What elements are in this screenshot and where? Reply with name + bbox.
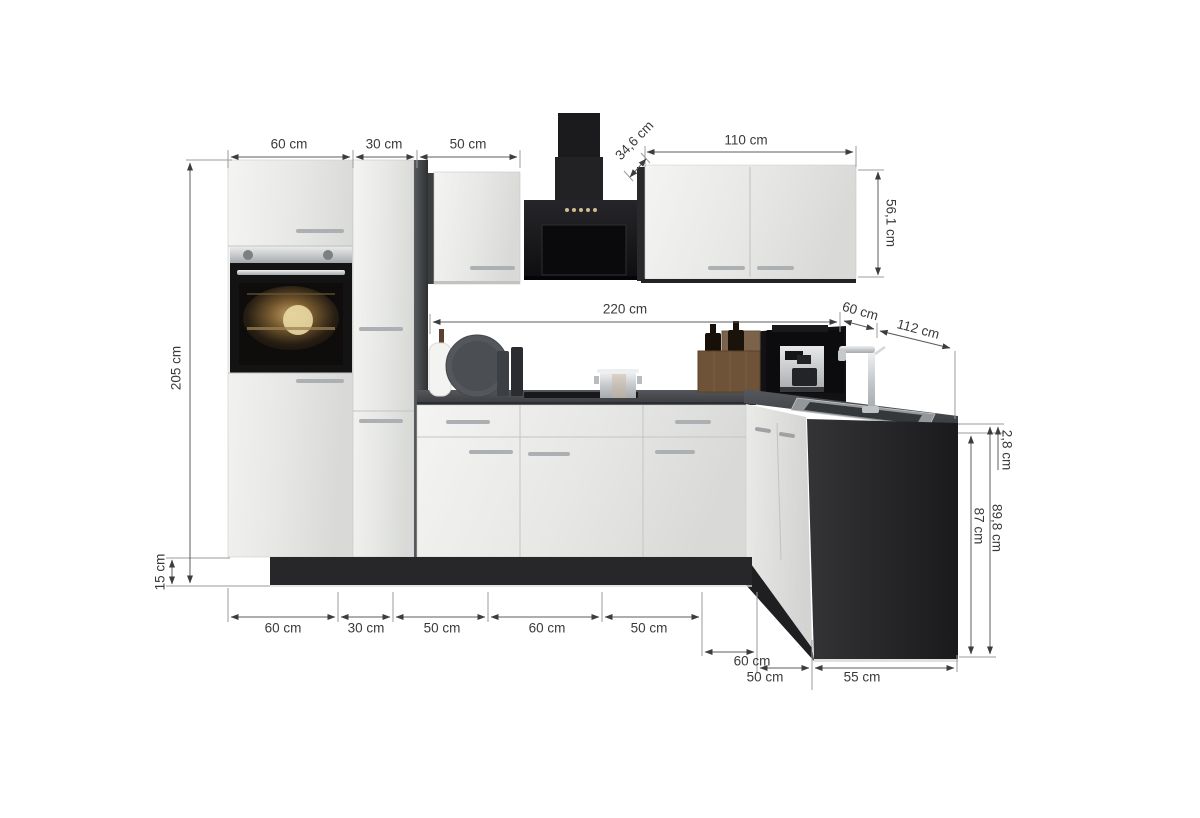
drip-tray [780, 387, 824, 392]
pepper-mill [511, 347, 523, 396]
wall-cabinet-side [637, 167, 645, 281]
worktop-edge [417, 402, 756, 405]
faucet-base [862, 406, 879, 413]
door-handle [655, 450, 695, 454]
dim-label-top-60: 60 cm [271, 138, 308, 153]
coffee-cup [792, 368, 817, 386]
door-handle [359, 419, 403, 423]
oven-knob [323, 250, 333, 260]
door-handle [528, 452, 570, 456]
oven-knob [243, 250, 253, 260]
floor-shadow [814, 659, 958, 662]
kitchen-scene [0, 0, 1200, 818]
dim-label-run-length: 220 cm [603, 303, 647, 318]
door-handle [296, 229, 344, 233]
hood-chimney-lower [555, 157, 603, 201]
dim-label-bottom-60a: 60 cm [265, 622, 302, 637]
faucet-lever [875, 347, 885, 354]
pepper-mill [497, 351, 509, 396]
kitchen-dimension-diagram: 60 cm 30 cm 50 cm 34,6 cm 110 cm 56,1 cm… [0, 0, 1200, 818]
dim-label-worktop-thickness: 2,8 cm [999, 430, 1014, 471]
coffee-spout [797, 355, 811, 364]
dim-label-bottom-30: 30 cm [348, 622, 385, 637]
cabinet-bottom-edge [641, 279, 856, 283]
oven-shelf [247, 327, 335, 330]
hood-button [579, 208, 583, 212]
faucet-body [868, 352, 875, 409]
oven-shelf [247, 293, 335, 295]
door-handle [470, 266, 515, 270]
bottle-neck [733, 321, 739, 332]
dim-label-br-55: 55 cm [844, 671, 881, 686]
dim-label-br-50: 50 cm [747, 671, 784, 686]
base-cabinet-run [417, 405, 746, 557]
door-handle [708, 266, 745, 270]
floor-shadow [270, 585, 752, 587]
dim-label-top-30: 30 cm [366, 138, 403, 153]
dim-label-bottom-50b: 50 cm [631, 622, 668, 637]
pot-handle [637, 376, 642, 384]
dim-label-carcass-height: 87 cm [971, 508, 986, 545]
oven-interior-light [283, 305, 313, 335]
dim-label-working-height: 89,8 cm [989, 504, 1004, 552]
pot-handle [594, 376, 599, 384]
dim-label-plinth-height: 15 cm [154, 554, 169, 591]
dim-label-wall-height: 56,1 cm [883, 199, 898, 247]
coffee-machine-top [772, 325, 828, 332]
wooden-crate [698, 351, 760, 392]
drawer-handle [675, 420, 711, 424]
hood-bottom-edge [524, 276, 637, 280]
hood-button [572, 208, 576, 212]
hood-glass-panel [542, 225, 626, 275]
plinth [270, 557, 752, 585]
faucet-tip [838, 350, 846, 361]
door-handle [359, 327, 403, 331]
hood-button [565, 208, 569, 212]
hood-button [586, 208, 590, 212]
dim-label-top-50: 50 cm [450, 138, 487, 153]
dim-label-bottom-50a: 50 cm [424, 622, 461, 637]
platter-center [452, 341, 502, 391]
door-handle [757, 266, 794, 270]
hood-button [593, 208, 597, 212]
end-side-panel [807, 419, 958, 659]
drawer-handle [446, 420, 490, 424]
dim-label-bottom-60b: 60 cm [529, 622, 566, 637]
dim-label-br-60: 60 cm [734, 655, 771, 670]
pot-reflection [612, 374, 626, 398]
hood-chimney-upper [558, 113, 600, 158]
cabinet-bottom-edge [434, 281, 520, 284]
dim-label-wall-width: 110 cm [724, 134, 767, 149]
tall-cabinet-30 [353, 160, 414, 557]
door-handle [296, 379, 344, 383]
oven-handle [237, 270, 345, 275]
door-handle [469, 450, 513, 454]
dim-label-total-height: 205 cm [170, 346, 185, 390]
bottle-neck [710, 324, 716, 335]
wall-cabinet-side [428, 173, 434, 284]
